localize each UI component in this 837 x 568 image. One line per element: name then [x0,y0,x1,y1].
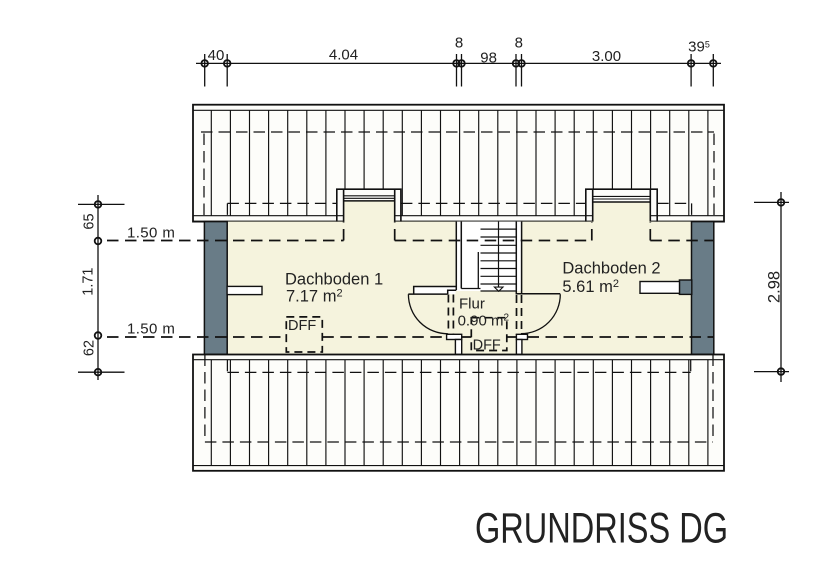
svg-text:8: 8 [515,35,523,52]
svg-text:DFF: DFF [288,318,316,334]
svg-text:GRUNDRISS DG: GRUNDRISS DG [475,506,728,553]
svg-text:Flur: Flur [459,296,485,313]
svg-text:4.04: 4.04 [329,47,358,64]
svg-text:DFF: DFF [473,337,501,353]
svg-text:Dachboden 2: Dachboden 2 [562,259,660,277]
svg-text:98: 98 [480,50,497,67]
svg-text:2.98: 2.98 [766,271,784,303]
svg-text:1.50 m: 1.50 m [127,321,175,338]
svg-text:1.50 m: 1.50 m [127,225,175,242]
svg-text:40: 40 [208,47,225,64]
svg-text:8: 8 [455,35,463,52]
svg-text:5.61 m2: 5.61 m2 [562,278,619,296]
svg-text:7.17 m2: 7.17 m2 [286,288,343,306]
svg-text:1.71: 1.71 [81,267,97,295]
svg-text:3.00: 3.00 [592,48,621,65]
svg-text:65: 65 [82,213,98,229]
svg-text:0.90 m2: 0.90 m2 [458,313,510,330]
svg-text:395: 395 [688,39,710,56]
svg-text:62: 62 [82,340,98,356]
svg-text:Dachboden 1: Dachboden 1 [285,271,383,289]
